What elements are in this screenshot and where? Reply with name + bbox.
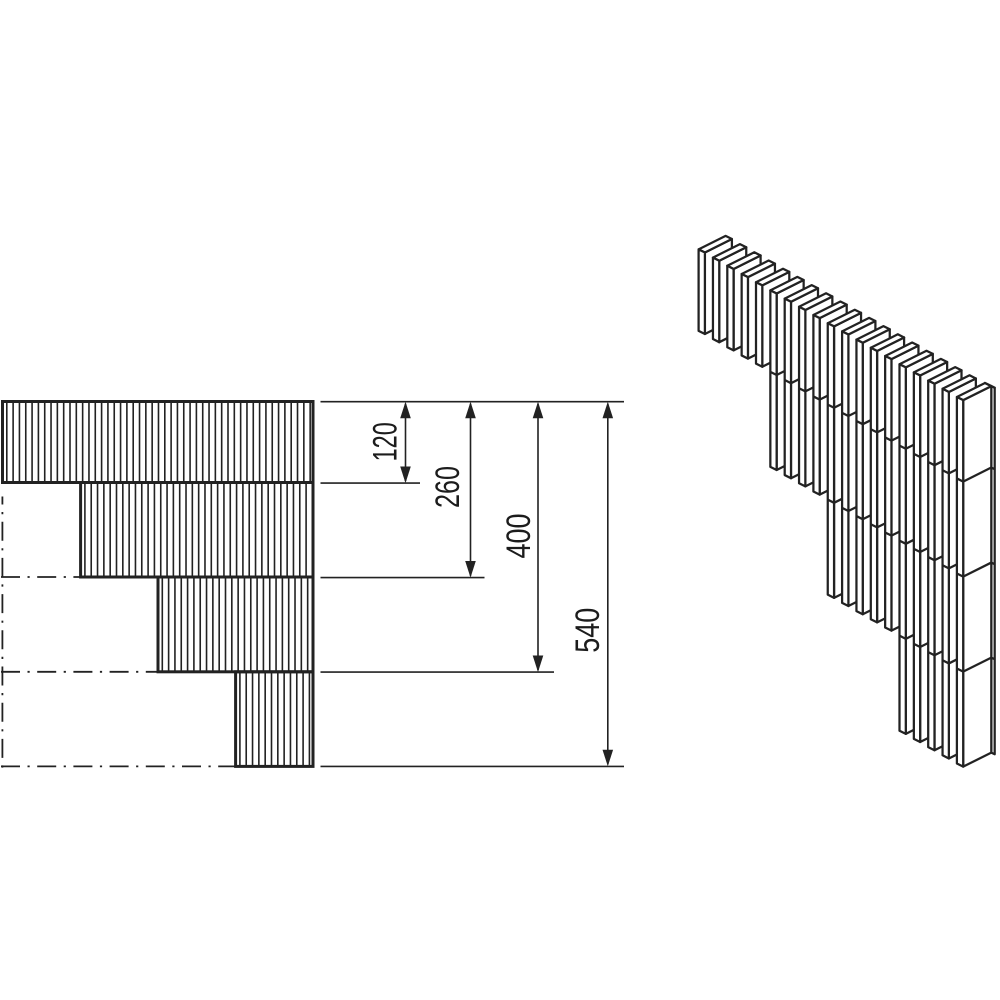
svg-text:540: 540	[569, 608, 607, 653]
svg-text:400: 400	[500, 514, 538, 559]
svg-text:120: 120	[367, 422, 405, 461]
svg-text:260: 260	[429, 466, 467, 508]
